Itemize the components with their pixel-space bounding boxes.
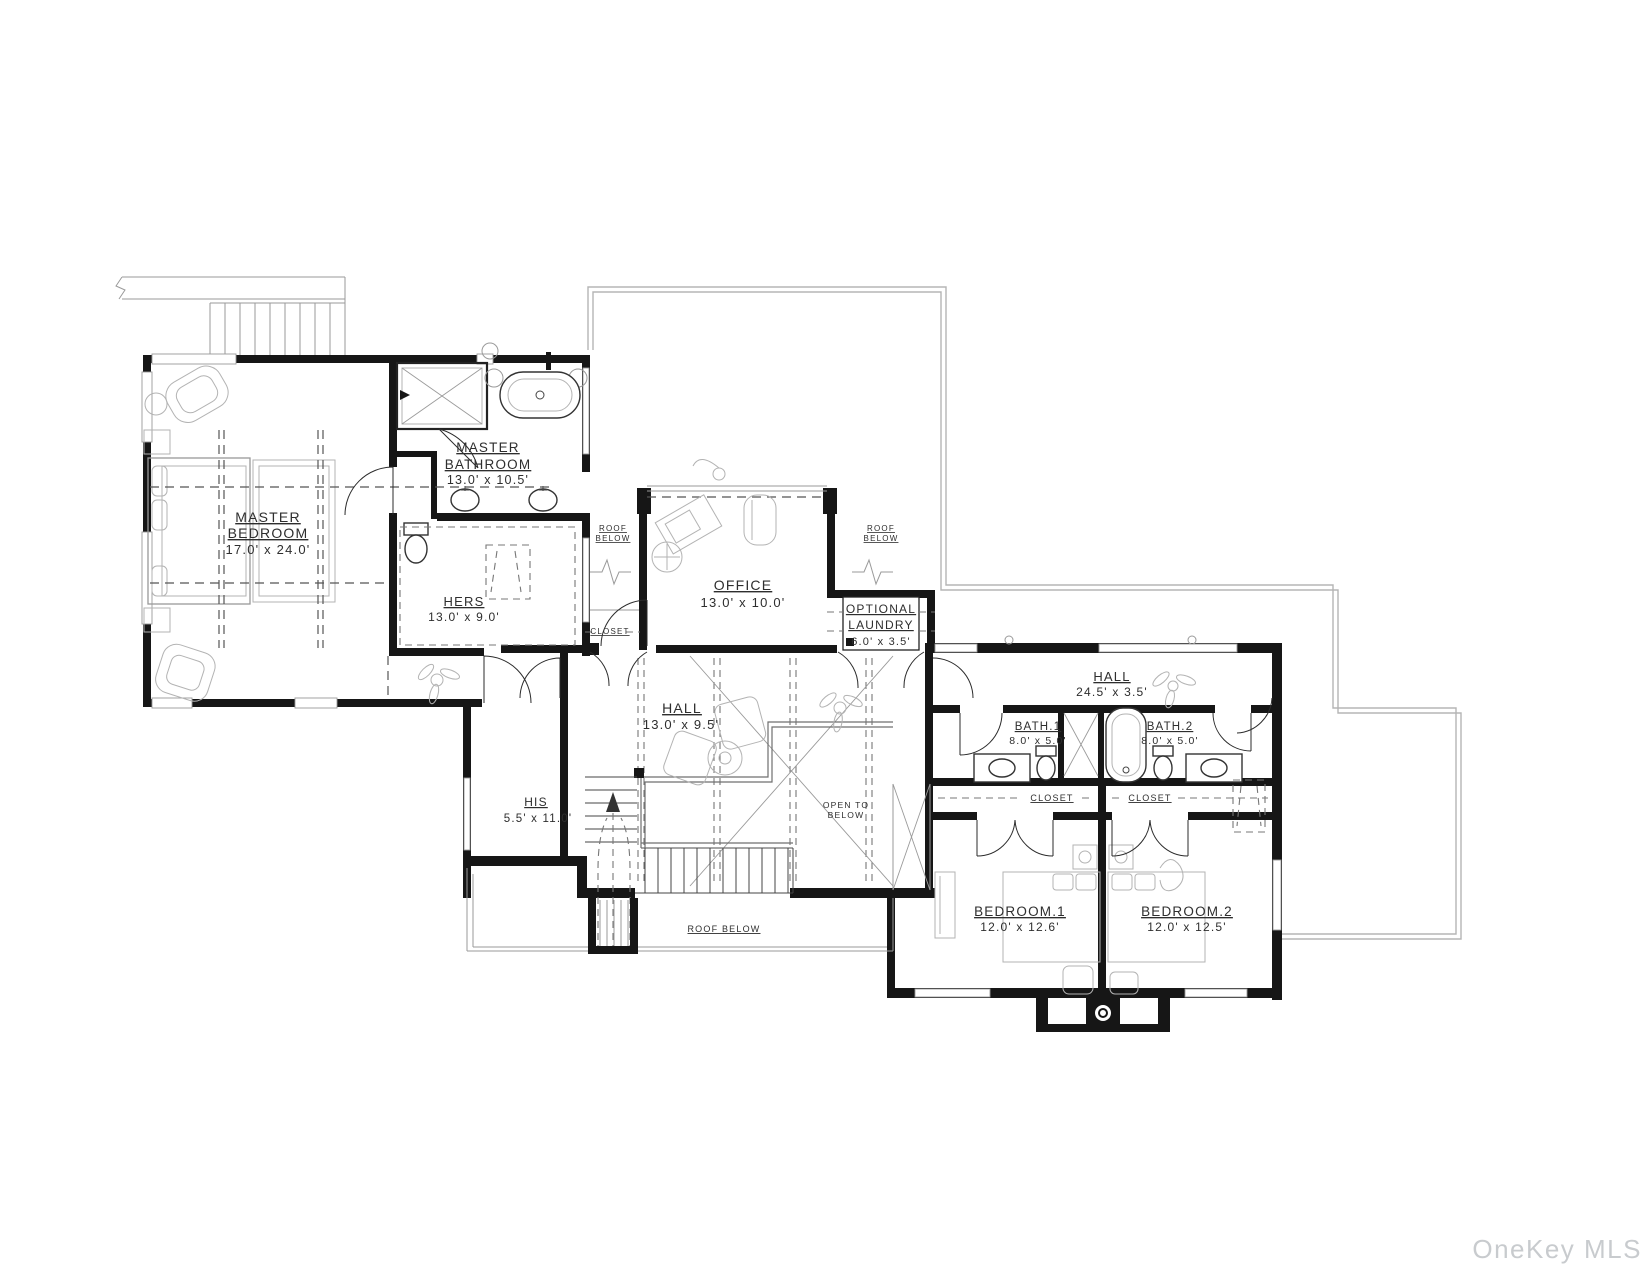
desk-chair <box>652 542 682 572</box>
shower <box>397 363 487 429</box>
laundry-label-1: OPTIONAL <box>846 602 916 616</box>
master-bedroom-label-2: BEDROOM <box>228 525 309 541</box>
doors <box>345 429 1272 856</box>
exterior-stairs <box>116 277 345 358</box>
hers-dims: 13.0' x 9.0' <box>428 610 500 624</box>
office-armchair <box>744 495 776 545</box>
hall-wing-label: HALL <box>1093 669 1130 684</box>
roof-below-right-2: BELOW <box>864 534 899 543</box>
roof-below-right-1: ROOF <box>867 524 895 533</box>
master-bedroom-dims: 17.0' x 24.0' <box>226 542 311 557</box>
bath2-dims: 8.0' x 5.0' <box>1141 735 1199 747</box>
hall-center-label: HALL <box>662 700 702 716</box>
hall2-ceiling-fan <box>1151 670 1197 709</box>
bath1-label: BATH.1 <box>1015 721 1062 733</box>
closet-hall-label: CLOSET <box>590 627 629 636</box>
desk <box>655 495 721 554</box>
bedroom2-label: BEDROOM.2 <box>1141 904 1233 919</box>
office-dims: 13.0' x 10.0' <box>701 595 786 610</box>
laundry-dims: 6.0' x 3.5' <box>851 636 911 648</box>
bath1-dims: 8.0' x 5.0' <box>1009 735 1067 747</box>
hall-wing-dims: 24.5' x 3.5' <box>1076 685 1148 699</box>
bath1-fixtures <box>974 746 1056 782</box>
roof-outline <box>588 287 1461 939</box>
bath2-label: BATH.2 <box>1147 721 1194 733</box>
roof-below-bottom: ROOF BELOW <box>687 924 760 934</box>
linen-closet <box>1064 713 1098 776</box>
roof-below-left-2: BELOW <box>596 534 631 543</box>
roof-below-left-1: ROOF <box>599 524 627 533</box>
armchair <box>152 641 219 705</box>
watermark: OneKey MLS <box>1472 1234 1642 1264</box>
labels: MASTER BEDROOM 17.0' x 24.0' MASTER BATH… <box>226 440 1233 934</box>
floor-plan-drawing: MASTER BEDROOM 17.0' x 24.0' MASTER BATH… <box>0 0 1650 1275</box>
bedroom1-label: BEDROOM.1 <box>974 904 1066 919</box>
closet2-label: CLOSET <box>1128 793 1171 803</box>
lamp <box>713 468 725 480</box>
ceiling-fan <box>416 662 461 705</box>
master-bathroom-label-2: BATHROOM <box>445 457 532 472</box>
bedroom2-dims: 12.0' x 12.5' <box>1147 920 1227 934</box>
his-dims: 5.5' x 11.0' <box>504 813 572 825</box>
floor-plan-page: MASTER BEDROOM 17.0' x 24.0' MASTER BATH… <box>0 0 1650 1275</box>
toilet-master <box>404 523 428 563</box>
master-bedroom-label-1: MASTER <box>235 509 301 525</box>
chaise <box>160 360 234 428</box>
bedroom1-dims: 12.0' x 12.6' <box>980 920 1060 934</box>
his-label: HIS <box>524 795 548 809</box>
closet1-label: CLOSET <box>1030 793 1073 803</box>
open-below-2: BELOW <box>828 810 865 820</box>
laundry-label-2: LAUNDRY <box>848 618 914 632</box>
hall-center-dims: 13.0' x 9.5' <box>643 717 719 732</box>
master-bathroom-dims: 13.0' x 10.5' <box>447 473 529 487</box>
hers-label: HERS <box>444 594 485 609</box>
vanity-sinks <box>451 486 557 511</box>
open-below-1: OPEN TO <box>823 800 869 810</box>
office-interior <box>647 459 827 572</box>
master-bathroom-label-1: MASTER <box>456 440 519 455</box>
master-bedroom-furniture <box>144 360 555 705</box>
office-label: OFFICE <box>714 577 773 593</box>
